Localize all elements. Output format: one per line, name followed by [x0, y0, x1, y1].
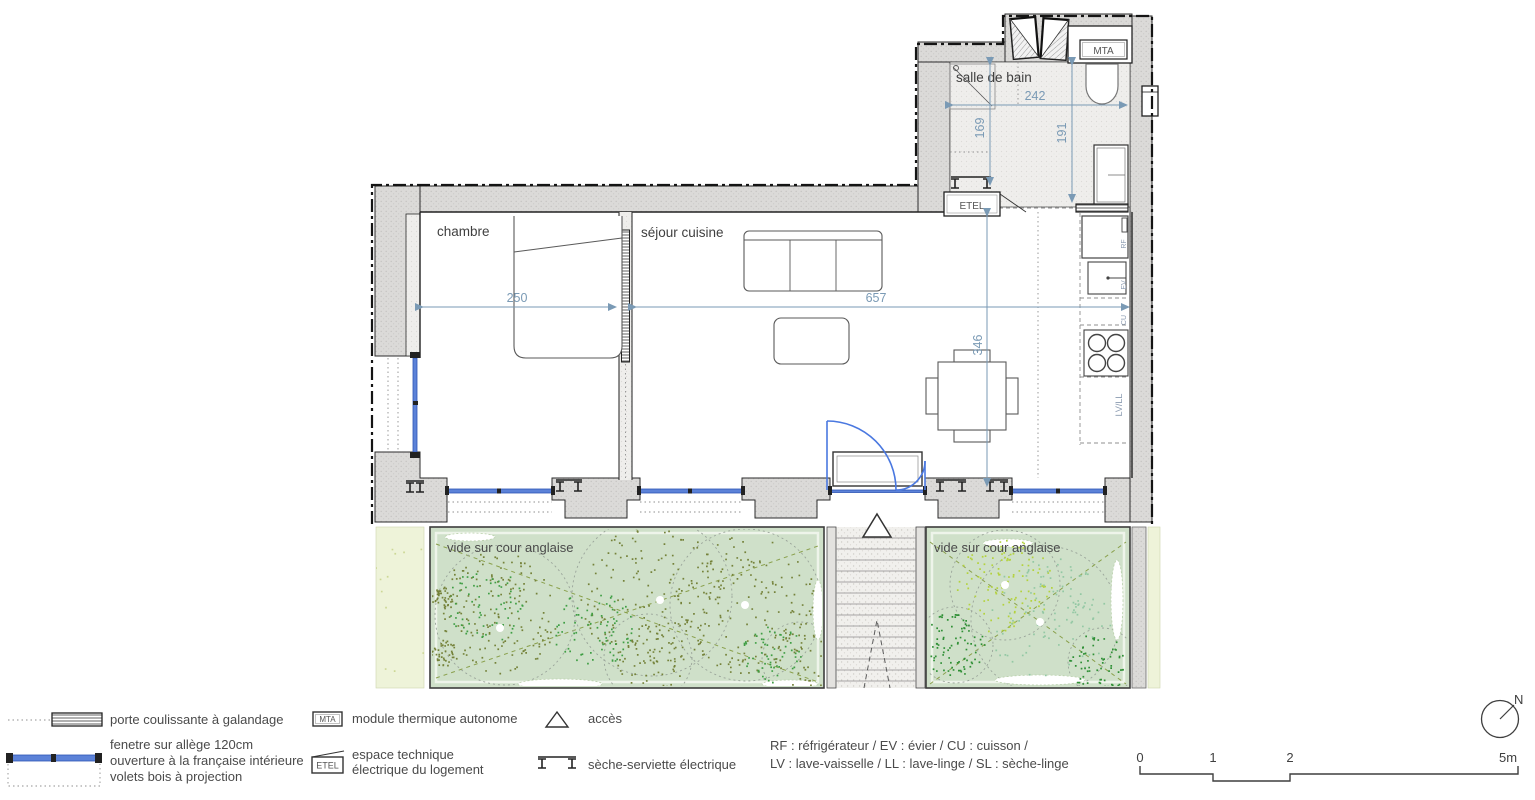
dim-bain-left: 169: [973, 118, 987, 139]
window-tick: [413, 401, 418, 405]
wall-pier: [925, 478, 1012, 518]
legend-window-cap: [95, 753, 102, 763]
tree-trunk: [656, 596, 664, 604]
pocket-door-leaf: [622, 230, 630, 362]
legend-access-icon: [546, 712, 568, 727]
courtyard-left-label: vide sur cour anglaise: [447, 540, 573, 555]
kitchen: RF EV CU LV/LL: [1038, 212, 1130, 478]
legend-etel-lid: [312, 751, 344, 757]
access-triangle: [863, 514, 891, 537]
legend-sliding-door-icon: [52, 713, 102, 726]
burner: [1089, 355, 1106, 372]
ev-label: EV: [1121, 280, 1128, 290]
scale-0: 0: [1136, 750, 1143, 765]
jamb: [410, 452, 420, 458]
planting-strip-left: [376, 527, 424, 688]
floor-plan-page: { "rooms": { "chambre": "chambre", "sejo…: [0, 0, 1535, 800]
wall-pier: [552, 478, 640, 518]
wall-corner-left: [375, 452, 447, 522]
courtyard-retaining-wall: [1132, 527, 1146, 688]
exterior-stairs: [827, 527, 925, 688]
coffee-table: [774, 318, 849, 364]
tree-trunk: [496, 624, 504, 632]
jamb: [637, 486, 641, 495]
dim-chambre: 250: [507, 291, 528, 305]
lvll-label: LV/LL: [1114, 394, 1124, 417]
stair-wall-right: [916, 527, 925, 688]
faucet-dot: [1106, 276, 1109, 279]
legend: porte coulissante à galandage fenetre su…: [6, 711, 1069, 786]
roof-window-2: [1041, 18, 1069, 60]
legend-volet-icon: [8, 764, 100, 786]
wall-pier: [742, 478, 830, 518]
courtyard-zone: vide sur cour anglaise vide sur cour ang…: [333, 516, 1160, 702]
planting-strip-right: [1148, 527, 1160, 688]
cu-label: CU: [1121, 315, 1128, 325]
jamb: [410, 352, 420, 358]
legend-towel-radiator-icon: [538, 757, 576, 768]
etel-label: ETEL: [959, 201, 984, 212]
scale-bar: 0 1 2 5m: [1136, 750, 1518, 781]
chambre-label: chambre: [437, 224, 490, 239]
legend-access-label: accès: [588, 711, 622, 726]
tree-trunk: [1001, 581, 1009, 589]
exterior-duct-box: [1142, 86, 1158, 116]
wc-fixture: [1086, 64, 1118, 104]
mta-label: MTA: [1093, 46, 1114, 57]
legend-window-line1: fenetre sur allège 120cm: [110, 737, 253, 752]
legend-mta-icon-text: MTA: [319, 715, 336, 724]
legend-window-line3: volets bois à projection: [110, 769, 242, 784]
fridge: [1082, 216, 1128, 258]
jamb: [1103, 486, 1107, 495]
dim-sejour: 657: [866, 291, 887, 305]
floor-plan-drawing: vide sur cour anglaise vide sur cour ang…: [0, 0, 1535, 800]
jamb: [445, 486, 449, 495]
legend-window-line2: ouverture à la française intérieure: [110, 753, 304, 768]
legend-window-tick: [51, 754, 56, 762]
stair-flight: [836, 527, 916, 688]
scale-1: 1: [1209, 750, 1216, 765]
burner: [1108, 355, 1125, 372]
dim-sejour-depth: 346: [971, 335, 985, 356]
tree-trunk: [1036, 618, 1044, 626]
fridge-hinge: [1122, 218, 1127, 232]
burner: [1108, 335, 1125, 352]
tree-trunk: [741, 601, 749, 609]
burner: [1089, 335, 1106, 352]
stair-wall-left: [827, 527, 836, 688]
window-tick: [497, 489, 501, 494]
rf-label: RF: [1121, 239, 1128, 248]
chair: [1006, 378, 1018, 414]
sejour-label: séjour cuisine: [641, 225, 724, 240]
dim-bain: 242: [1025, 89, 1046, 103]
legend-window-cap: [6, 753, 13, 763]
entry-bench: [833, 452, 922, 486]
legend-mta-label: module thermique autonome: [352, 711, 518, 726]
furniture: [514, 216, 1018, 486]
legend-abbrev-line1: RF : réfrigérateur / EV : évier / CU : c…: [770, 738, 1028, 753]
chair: [926, 378, 938, 414]
wall-top: [375, 186, 940, 212]
north-label: N: [1514, 692, 1523, 707]
bed: [514, 216, 622, 358]
wall-bathroom-left: [918, 42, 950, 212]
north-needle: [1500, 705, 1514, 719]
dim-bain-right: 191: [1055, 123, 1069, 144]
scale-bar-line: [1140, 766, 1518, 781]
sliding-door-leaf: [1076, 204, 1128, 212]
chair: [954, 430, 990, 442]
jamb: [828, 486, 832, 495]
towel-radiator-icon: [538, 757, 576, 768]
jamb: [741, 486, 745, 495]
dining-table: [938, 362, 1006, 430]
legend-abbrev-line2: LV : lave-vaisselle / LL : lave-linge / …: [770, 756, 1069, 771]
scale-2: 2: [1286, 750, 1293, 765]
legend-etel-line2: électrique du logement: [352, 762, 484, 777]
north-arrow: N: [1482, 692, 1524, 738]
legend-etel-icon-text: ETEL: [316, 761, 339, 771]
legend-towel-radiator-label: sèche-serviette électrique: [588, 757, 736, 772]
bathroom-label: salle de bain: [956, 70, 1032, 85]
jamb: [551, 486, 555, 495]
window-tick: [688, 489, 692, 494]
entry-threshold: [830, 490, 925, 493]
jamb: [1009, 486, 1013, 495]
roof-window-1: [1010, 17, 1038, 59]
window-reveal-left: [406, 214, 420, 356]
window-tick: [1056, 489, 1060, 494]
legend-etel-line1: espace technique: [352, 747, 454, 762]
scale-5m: 5m: [1499, 750, 1517, 765]
courtyard-right-label: vide sur cour anglaise: [934, 540, 1060, 555]
legend-sliding-door-label: porte coulissante à galandage: [110, 712, 283, 727]
